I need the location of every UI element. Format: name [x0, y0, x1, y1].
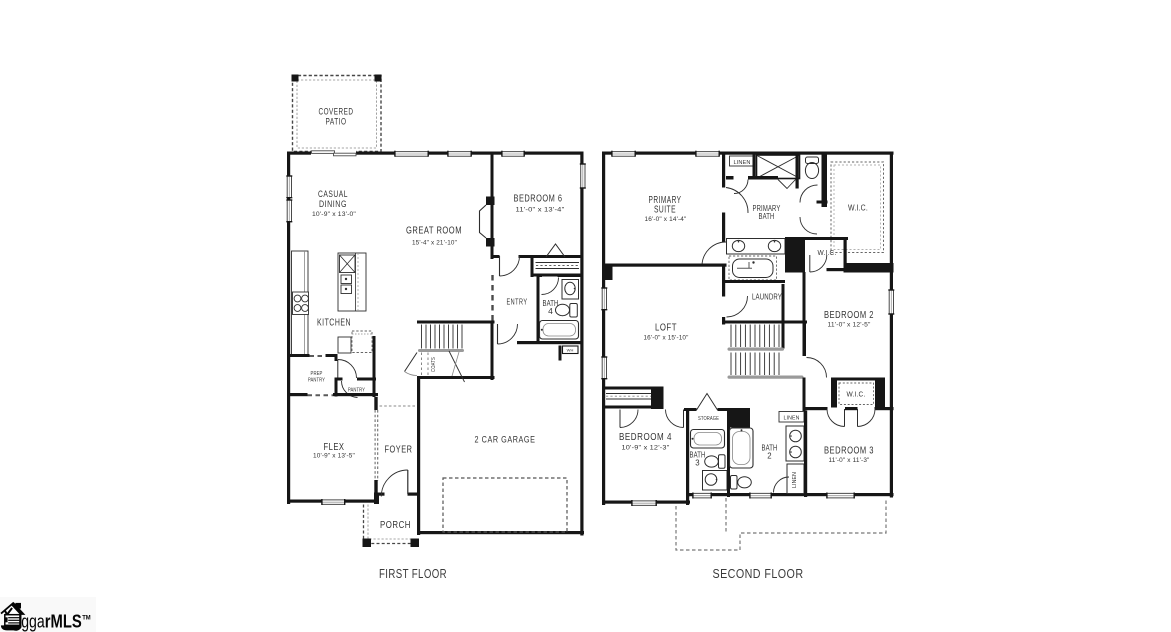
- svg-text:DINING: DINING: [319, 199, 347, 209]
- svg-text:LINEN: LINEN: [784, 416, 800, 422]
- svg-text:BEDROOM 3: BEDROOM 3: [824, 445, 874, 457]
- svg-text:PATIO: PATIO: [326, 117, 347, 127]
- svg-text:PORCH: PORCH: [380, 519, 411, 531]
- svg-text:FLEX: FLEX: [324, 441, 345, 453]
- svg-text:16'-0" x 14'-4": 16'-0" x 14'-4": [645, 217, 687, 223]
- svg-text:FOYER: FOYER: [385, 445, 413, 456]
- svg-text:11'-0" x 11'-3": 11'-0" x 11'-3": [829, 458, 870, 464]
- svg-text:KITCHEN: KITCHEN: [317, 318, 351, 329]
- svg-text:15'-4" x 21'-10": 15'-4" x 21'-10": [412, 241, 457, 247]
- svg-text:11'-0" x 12'-5": 11'-0" x 12'-5": [828, 323, 871, 329]
- svg-text:10'-9" x 12'-3": 10'-9" x 12'-3": [622, 446, 670, 452]
- svg-text:rMLS: rMLS: [45, 612, 82, 632]
- svg-text:gga: gga: [21, 612, 45, 632]
- svg-text:2 CAR GARAGE: 2 CAR GARAGE: [475, 435, 536, 445]
- svg-text:W.I.C.: W.I.C.: [848, 204, 868, 213]
- svg-text:TM: TM: [82, 615, 91, 621]
- svg-text:STORAGE: STORAGE: [698, 416, 719, 422]
- svg-text:LOFT: LOFT: [655, 322, 677, 334]
- svg-text:PREP: PREP: [311, 371, 323, 377]
- svg-text:COVERED: COVERED: [319, 107, 354, 117]
- svg-text:10'-9" x 13'-5": 10'-9" x 13'-5": [313, 454, 355, 460]
- svg-text:LINEN: LINEN: [734, 160, 751, 166]
- svg-text:SUITE: SUITE: [654, 205, 676, 216]
- svg-text:LAUNDRY: LAUNDRY: [752, 293, 782, 302]
- svg-text:BEDROOM 6: BEDROOM 6: [514, 193, 563, 205]
- svg-text:11'-0" x 13'-4": 11'-0" x 13'-4": [516, 208, 565, 214]
- svg-text:3: 3: [695, 459, 700, 468]
- svg-text:SECOND FLOOR: SECOND FLOOR: [713, 567, 804, 581]
- svg-text:ENTRY: ENTRY: [507, 297, 528, 307]
- svg-text:BATH: BATH: [759, 212, 775, 221]
- svg-text:10'-9" x 13'-0": 10'-9" x 13'-0": [312, 212, 356, 218]
- svg-text:2: 2: [767, 452, 772, 461]
- svg-text:W.I.C.: W.I.C.: [818, 248, 837, 257]
- svg-text:4: 4: [548, 306, 553, 316]
- svg-text:FIRST FLOOR: FIRST FLOOR: [379, 567, 447, 581]
- svg-text:BEDROOM 2: BEDROOM 2: [824, 309, 874, 321]
- svg-text:PANTRY: PANTRY: [308, 378, 325, 384]
- svg-text:BEDROOM 4: BEDROOM 4: [619, 431, 672, 443]
- svg-text:COATS: COATS: [431, 357, 437, 372]
- svg-text:PANTRY: PANTRY: [348, 388, 365, 394]
- svg-text:WH: WH: [567, 348, 574, 353]
- svg-text:LINEN: LINEN: [792, 472, 798, 488]
- svg-text:CASUAL: CASUAL: [318, 189, 348, 199]
- svg-text:GREAT ROOM: GREAT ROOM: [406, 225, 462, 237]
- svg-text:16'-0" x 15'-10": 16'-0" x 15'-10": [644, 336, 689, 342]
- svg-text:W.I.C.: W.I.C.: [847, 390, 866, 399]
